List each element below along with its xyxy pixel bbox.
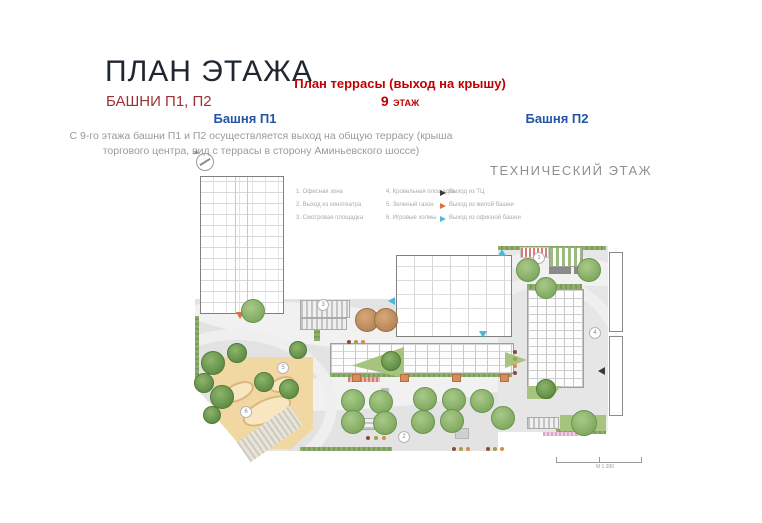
legend-exit-label: Выход из ТЦ [449, 186, 485, 199]
planter-dot [493, 447, 497, 451]
terrace-description: С 9-го этажа башни П1 и П2 осуществляетс… [68, 129, 454, 159]
tower-p2-label: Башня П2 [512, 111, 602, 126]
tree-icon [413, 387, 437, 411]
planter-dot [382, 436, 386, 440]
tower-p1-floorplan [200, 176, 284, 314]
brown-tree-icon [374, 308, 398, 332]
planter-dot [452, 447, 456, 451]
planter-dot [347, 340, 351, 344]
pergola-grid-structure [527, 289, 584, 388]
legend-item: 3. Смотровая площадка [296, 212, 363, 225]
legend-exit-label: Выход из жилой башни [449, 199, 514, 212]
page-title: ПЛАН ЭТАЖА [105, 55, 313, 89]
scale-bar [556, 456, 642, 463]
office-exit-arrow-icon [388, 297, 395, 305]
legend-exit-label: Выход из офисной башни [449, 212, 521, 225]
bench [549, 267, 571, 274]
planter-dot [486, 447, 490, 451]
plan-marker: 4 [589, 327, 601, 339]
tree-icon [289, 341, 307, 359]
mall-exit-arrow-icon [598, 367, 605, 375]
planter-dot [374, 436, 378, 440]
planter-dot [459, 447, 463, 451]
tree-icon [279, 379, 299, 399]
legend-exit-row: Выход из офисной башни [440, 212, 521, 225]
exit-office-arrow-icon [440, 216, 446, 222]
tower-p1-label: Башня П1 [200, 111, 290, 126]
planter-dot [466, 447, 470, 451]
plan-marker: 2 [398, 431, 410, 443]
tree-icon [411, 410, 435, 434]
plan-marker: 6 [240, 406, 252, 418]
scale-label: М 1:200 [596, 464, 614, 470]
tree-icon [254, 372, 274, 392]
legend-column-1: 1. Офисная зона 2. Выход из кинотеатра 3… [296, 186, 363, 225]
planter-dot [513, 357, 517, 361]
green-edge [195, 316, 199, 378]
pergola-structure [330, 343, 514, 374]
bench [527, 417, 559, 429]
adjacent-building-outline [609, 252, 623, 332]
scale-tick [641, 457, 642, 462]
planter-icon [352, 374, 361, 382]
planter-dot [513, 350, 517, 354]
planter-dot [513, 371, 517, 375]
tree-icon [470, 389, 494, 413]
green-edge [300, 447, 392, 451]
tree-icon [381, 351, 401, 371]
tree-icon [203, 406, 221, 424]
tree-icon [491, 406, 515, 430]
plan-marker: 5 [277, 362, 289, 374]
planter-dot [366, 436, 370, 440]
tree-icon [373, 411, 397, 435]
tree-icon [571, 410, 597, 436]
exit-mall-arrow-icon [440, 190, 446, 196]
tree-icon [241, 299, 265, 323]
terrace-title: План террасы (выход на крышу) [285, 76, 515, 91]
planter-dot [513, 364, 517, 368]
office-exit-arrow-icon [498, 249, 506, 256]
plan-marker: 3 [317, 299, 329, 311]
legend-exit-row: Выход из жилой башни [440, 199, 521, 212]
tree-icon [341, 410, 365, 434]
office-exit-arrow-icon [479, 331, 487, 338]
exit-residential-arrow-icon [440, 203, 446, 209]
legend-exit-row: Выход из ТЦ [440, 186, 521, 199]
floor-word: ЭТАЖ [393, 98, 419, 108]
slide: ПЛАН ЭТАЖА БАШНИ П1, П2 План террасы (вы… [0, 0, 762, 523]
legend-item: 2. Выход из кинотеатра [296, 199, 363, 212]
bench [300, 318, 347, 330]
floor-number-line: 9 ЭТАЖ [285, 93, 515, 111]
technical-floor-label: ТЕХНИЧЕСКИЙ ЭТАЖ [490, 163, 652, 178]
planter-dot [361, 340, 365, 344]
north-arrow-icon [196, 153, 214, 171]
tree-icon [536, 379, 556, 399]
tree-icon [201, 351, 225, 375]
planter-dot [354, 340, 358, 344]
adjacent-building-outline [609, 336, 623, 416]
legend-item: 1. Офисная зона [296, 186, 363, 199]
tree-icon [227, 343, 247, 363]
tree-icon [516, 258, 540, 282]
north-tip [192, 150, 198, 156]
tree-icon [535, 277, 557, 299]
technical-building-floorplan [396, 255, 512, 337]
planter-icon [452, 374, 461, 382]
page-subtitle: БАШНИ П1, П2 [106, 93, 212, 110]
scale-tick [556, 457, 557, 462]
legend-column-exits: Выход из ТЦ Выход из жилой башни Выход и… [440, 186, 521, 225]
tree-icon [577, 258, 601, 282]
tree-icon [440, 409, 464, 433]
scale-tick [599, 457, 600, 462]
north-needle [199, 158, 210, 166]
planter-dot [500, 447, 504, 451]
floor-number: 9 [381, 93, 389, 109]
pink-edge [543, 432, 579, 436]
planter-icon [400, 374, 409, 382]
planter-icon [500, 374, 509, 382]
